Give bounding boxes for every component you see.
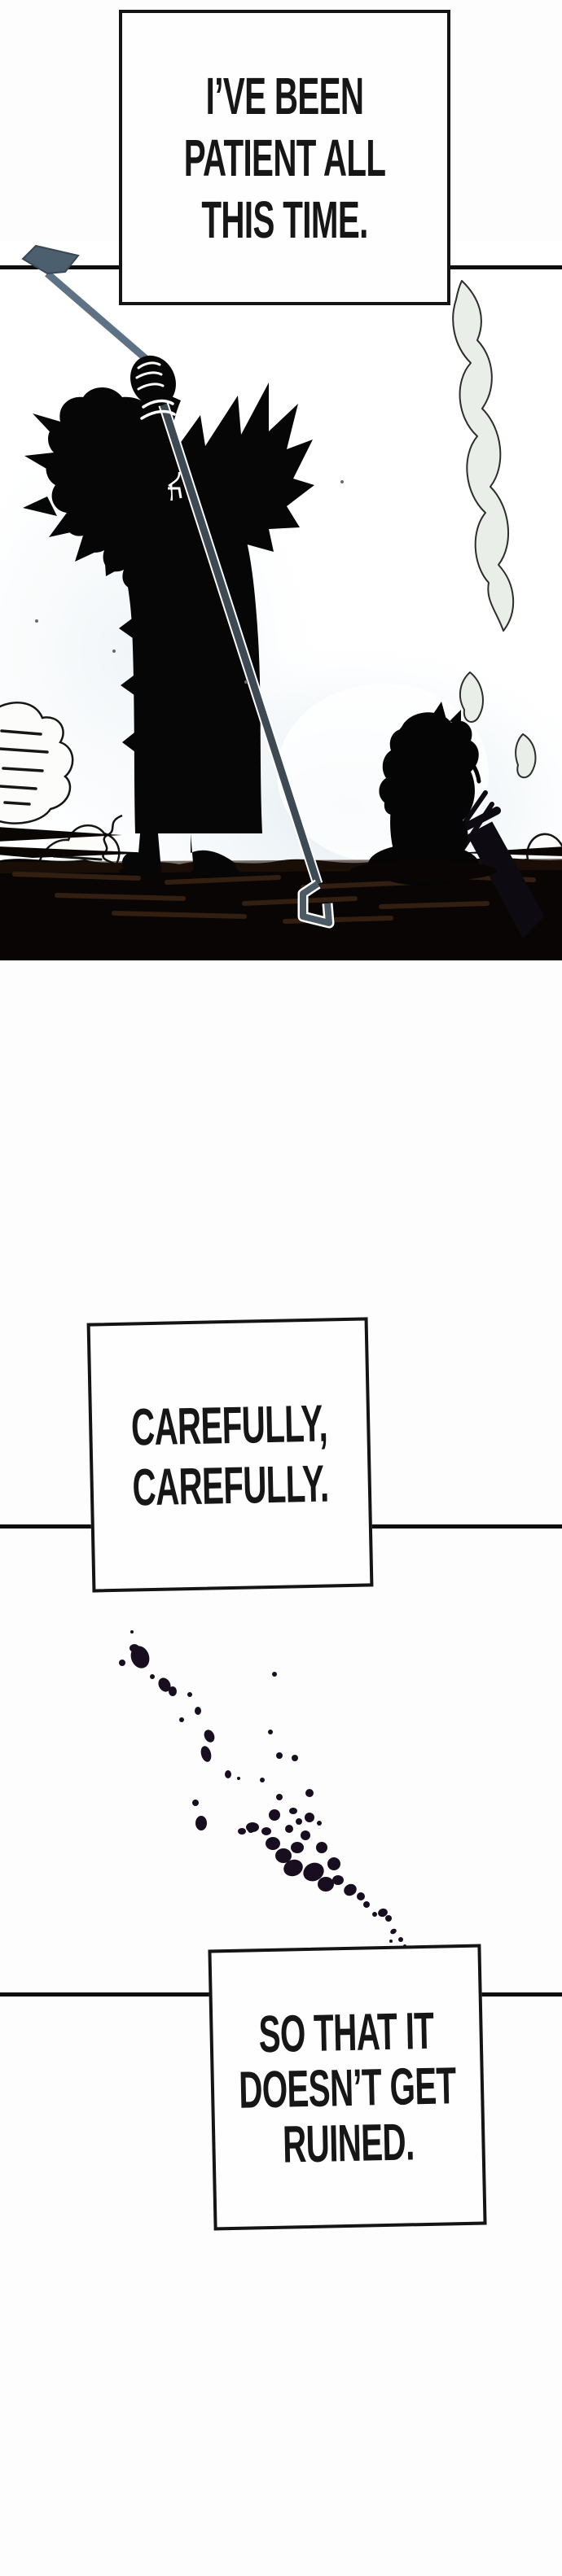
speech-line: I’VE BEEN (184, 65, 386, 127)
speech-box-1: I’VE BEEN PATIENT ALL THIS TIME. (119, 10, 450, 305)
speech-box-2: CAREFULLY, CAREFULLY. (87, 1317, 374, 1592)
speech-line: PATIENT ALL (184, 127, 386, 189)
speech-line: DOESN’T GET (239, 2058, 457, 2118)
speech-line: CAREFULLY. (132, 1453, 329, 1517)
speech-box-3: SO THAT IT DOESN’T GET RUINED. (208, 1944, 486, 2231)
speech-line: CAREFULLY, (131, 1393, 328, 1457)
webtoon-page: I’VE BEEN PATIENT ALL THIS TIME. CAREFUL… (0, 0, 562, 2576)
speech-line: RUINED. (239, 2113, 458, 2173)
reaper-robe (122, 501, 262, 834)
speech-text-1: I’VE BEEN PATIENT ALL THIS TIME. (184, 65, 386, 251)
ink-splatter (106, 1624, 424, 1949)
speech-text-2: CAREFULLY, CAREFULLY. (131, 1393, 330, 1517)
speech-text-3: SO THAT IT DOESN’T GET RUINED. (237, 2002, 458, 2173)
speech-line: SO THAT IT (237, 2002, 455, 2062)
speech-line: THIS TIME. (184, 189, 386, 251)
scene-illustration (0, 241, 562, 960)
ink-splatter-blobs (119, 1630, 406, 1948)
